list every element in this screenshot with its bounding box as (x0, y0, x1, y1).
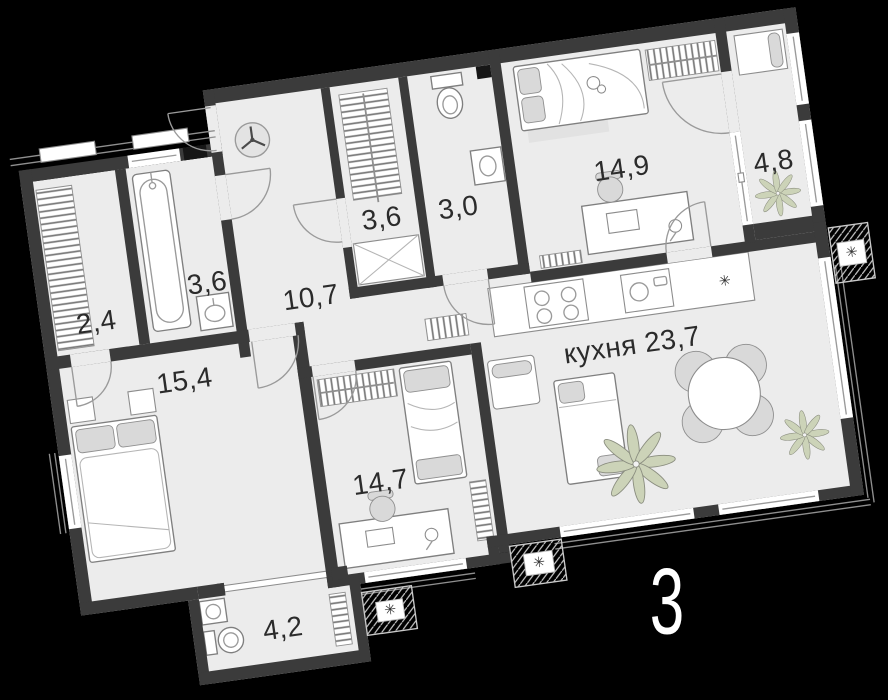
washing-machine-icon (199, 598, 227, 625)
room-label-wc: 3,0 (436, 189, 480, 225)
ac-symbol: ✳ (532, 554, 546, 572)
ac-symbol: ✳ (845, 244, 859, 262)
armchair-icon (487, 355, 540, 410)
floor-plan-canvas: ✳ (0, 0, 888, 700)
nightstand-icon (128, 388, 156, 415)
floor-plan-screenshot: ✳ (0, 0, 888, 700)
room-label-wardrobe: 2,4 (74, 304, 118, 340)
balcony-table-icon (734, 29, 788, 75)
double-bed-icon (71, 415, 176, 562)
kitchen-sink-icon (620, 269, 673, 313)
ac-cage: ✳ (361, 586, 417, 636)
plan-number: 3 (650, 548, 685, 653)
room-label-closet: 3,6 (360, 200, 404, 236)
stove-icon (524, 279, 589, 328)
ac-symbol: ✳ (383, 602, 397, 620)
room-label-balcony: 4,8 (751, 143, 795, 179)
sink-icon (470, 147, 505, 185)
plan-number-group: 3 (650, 548, 685, 653)
ac-cage: ✳ (509, 539, 566, 587)
room-label-bathroom-small: 4,2 (261, 610, 305, 646)
room-label-bathroom: 3,6 (185, 264, 229, 300)
shelf-unit-icon (353, 235, 424, 285)
fridge-symbol: ✳ (718, 273, 732, 291)
apartment-plan: ✳ (2, 1, 888, 700)
dining-table-icon (672, 342, 776, 446)
ac-cage: ✳ (828, 223, 875, 284)
